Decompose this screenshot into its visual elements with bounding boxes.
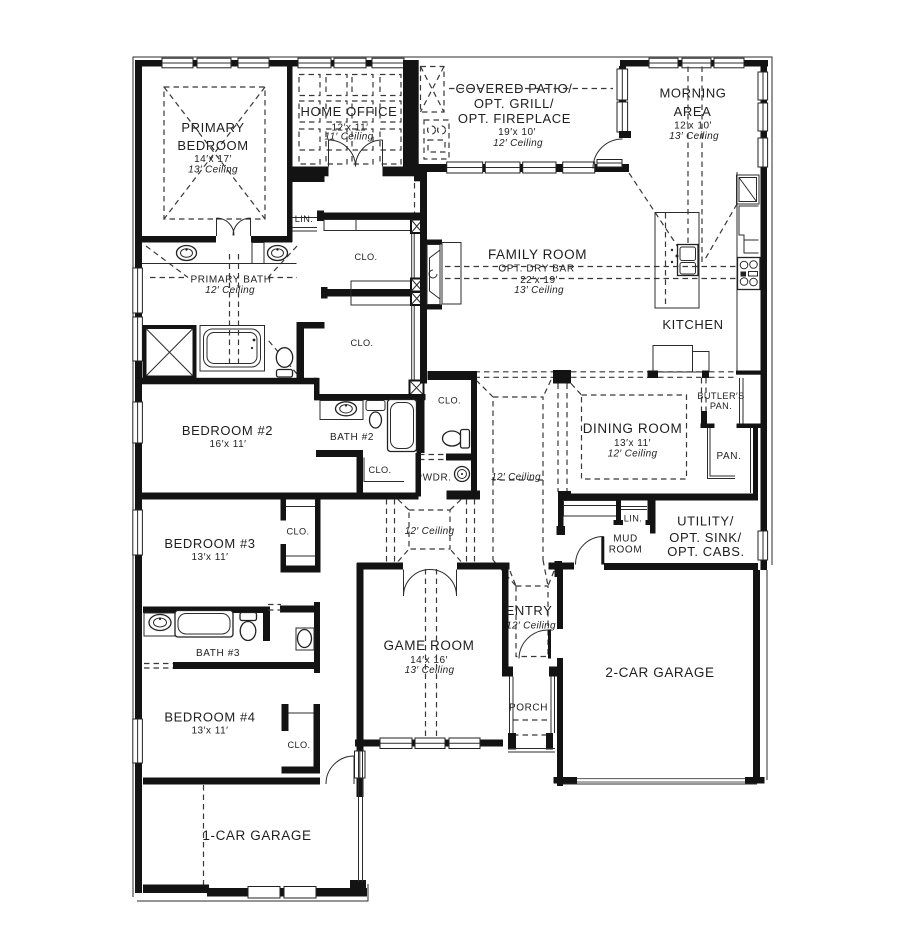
svg-text:OPT. DRY BAR: OPT. DRY BAR (498, 264, 574, 275)
svg-text:BEDROOM #4: BEDROOM #4 (164, 710, 255, 725)
svg-text:1-CAR GARAGE: 1-CAR GARAGE (202, 828, 311, 843)
svg-text:14′x 17′: 14′x 17′ (194, 154, 232, 165)
svg-text:BEDROOM #2: BEDROOM #2 (182, 423, 273, 438)
svg-text:OPT. CABS.: OPT. CABS. (667, 544, 745, 559)
svg-text:BEDROOM #3: BEDROOM #3 (164, 536, 255, 551)
svg-text:CLO.: CLO. (438, 396, 461, 406)
svg-text:BUTLER′S: BUTLER′S (697, 391, 744, 401)
svg-text:PAN.: PAN. (717, 451, 742, 462)
svg-text:OPT. SINK/: OPT. SINK/ (669, 530, 741, 545)
svg-text:16′x 11′: 16′x 11′ (209, 439, 246, 450)
svg-text:BATH #2: BATH #2 (330, 432, 374, 443)
svg-text:CLO.: CLO. (368, 465, 391, 475)
svg-text:13′x 11′: 13′x 11′ (614, 438, 651, 449)
svg-text:12′ Ceiling: 12′ Ceiling (405, 526, 455, 537)
svg-text:FAMILY ROOM: FAMILY ROOM (488, 247, 587, 262)
svg-text:MORNING: MORNING (659, 86, 726, 101)
svg-text:PRIMARY: PRIMARY (181, 120, 244, 135)
svg-text:12′ Ceiling: 12′ Ceiling (608, 449, 658, 460)
svg-text:ENTRY: ENTRY (506, 603, 553, 618)
svg-text:12′ Ceiling: 12′ Ceiling (493, 138, 543, 149)
svg-text:11′ Ceiling: 11′ Ceiling (325, 132, 374, 143)
svg-text:DINING ROOM: DINING ROOM (583, 421, 683, 436)
svg-text:LIN.: LIN. (295, 214, 313, 224)
svg-text:AREA: AREA (674, 104, 712, 119)
svg-text:13′x 11′: 13′x 11′ (191, 726, 228, 737)
svg-text:UTILITY/: UTILITY/ (677, 514, 734, 529)
svg-text:MUD: MUD (613, 534, 638, 545)
svg-text:PAN.: PAN. (710, 401, 732, 411)
svg-text:19′x 10′: 19′x 10′ (498, 127, 536, 138)
svg-text:2-CAR GARAGE: 2-CAR GARAGE (605, 665, 714, 680)
svg-text:BATH #3: BATH #3 (196, 648, 240, 659)
svg-text:CLO.: CLO. (286, 527, 309, 537)
svg-text:BEDROOM: BEDROOM (177, 138, 248, 153)
svg-text:13′x 11′: 13′x 11′ (191, 552, 228, 563)
svg-text:13′ Ceiling: 13′ Ceiling (405, 665, 455, 676)
svg-text:CLO.: CLO. (287, 740, 310, 750)
svg-text:CLO.: CLO. (350, 338, 373, 348)
svg-text:12′x 10′: 12′x 10′ (674, 121, 712, 132)
svg-text:ROOM: ROOM (609, 545, 643, 556)
svg-text:HOME OFFICE: HOME OFFICE (301, 104, 398, 119)
svg-text:KITCHEN: KITCHEN (662, 317, 723, 332)
svg-text:12′ Ceiling: 12′ Ceiling (491, 472, 541, 483)
svg-text:PRIMARY BATH: PRIMARY BATH (190, 275, 271, 286)
svg-text:13′ Ceiling: 13′ Ceiling (188, 165, 238, 176)
svg-text:LIN.: LIN. (624, 514, 642, 524)
svg-text:CLO.: CLO. (354, 252, 377, 262)
svg-text:PORCH: PORCH (509, 703, 548, 714)
svg-text:13′ Ceiling: 13′ Ceiling (669, 131, 719, 142)
svg-text:OPT. GRILL/: OPT. GRILL/ (474, 96, 554, 111)
svg-text:13′ Ceiling: 13′ Ceiling (514, 285, 564, 296)
svg-text:OPT. FIREPLACE: OPT. FIREPLACE (458, 111, 571, 126)
svg-text:GAME ROOM: GAME ROOM (384, 638, 475, 653)
